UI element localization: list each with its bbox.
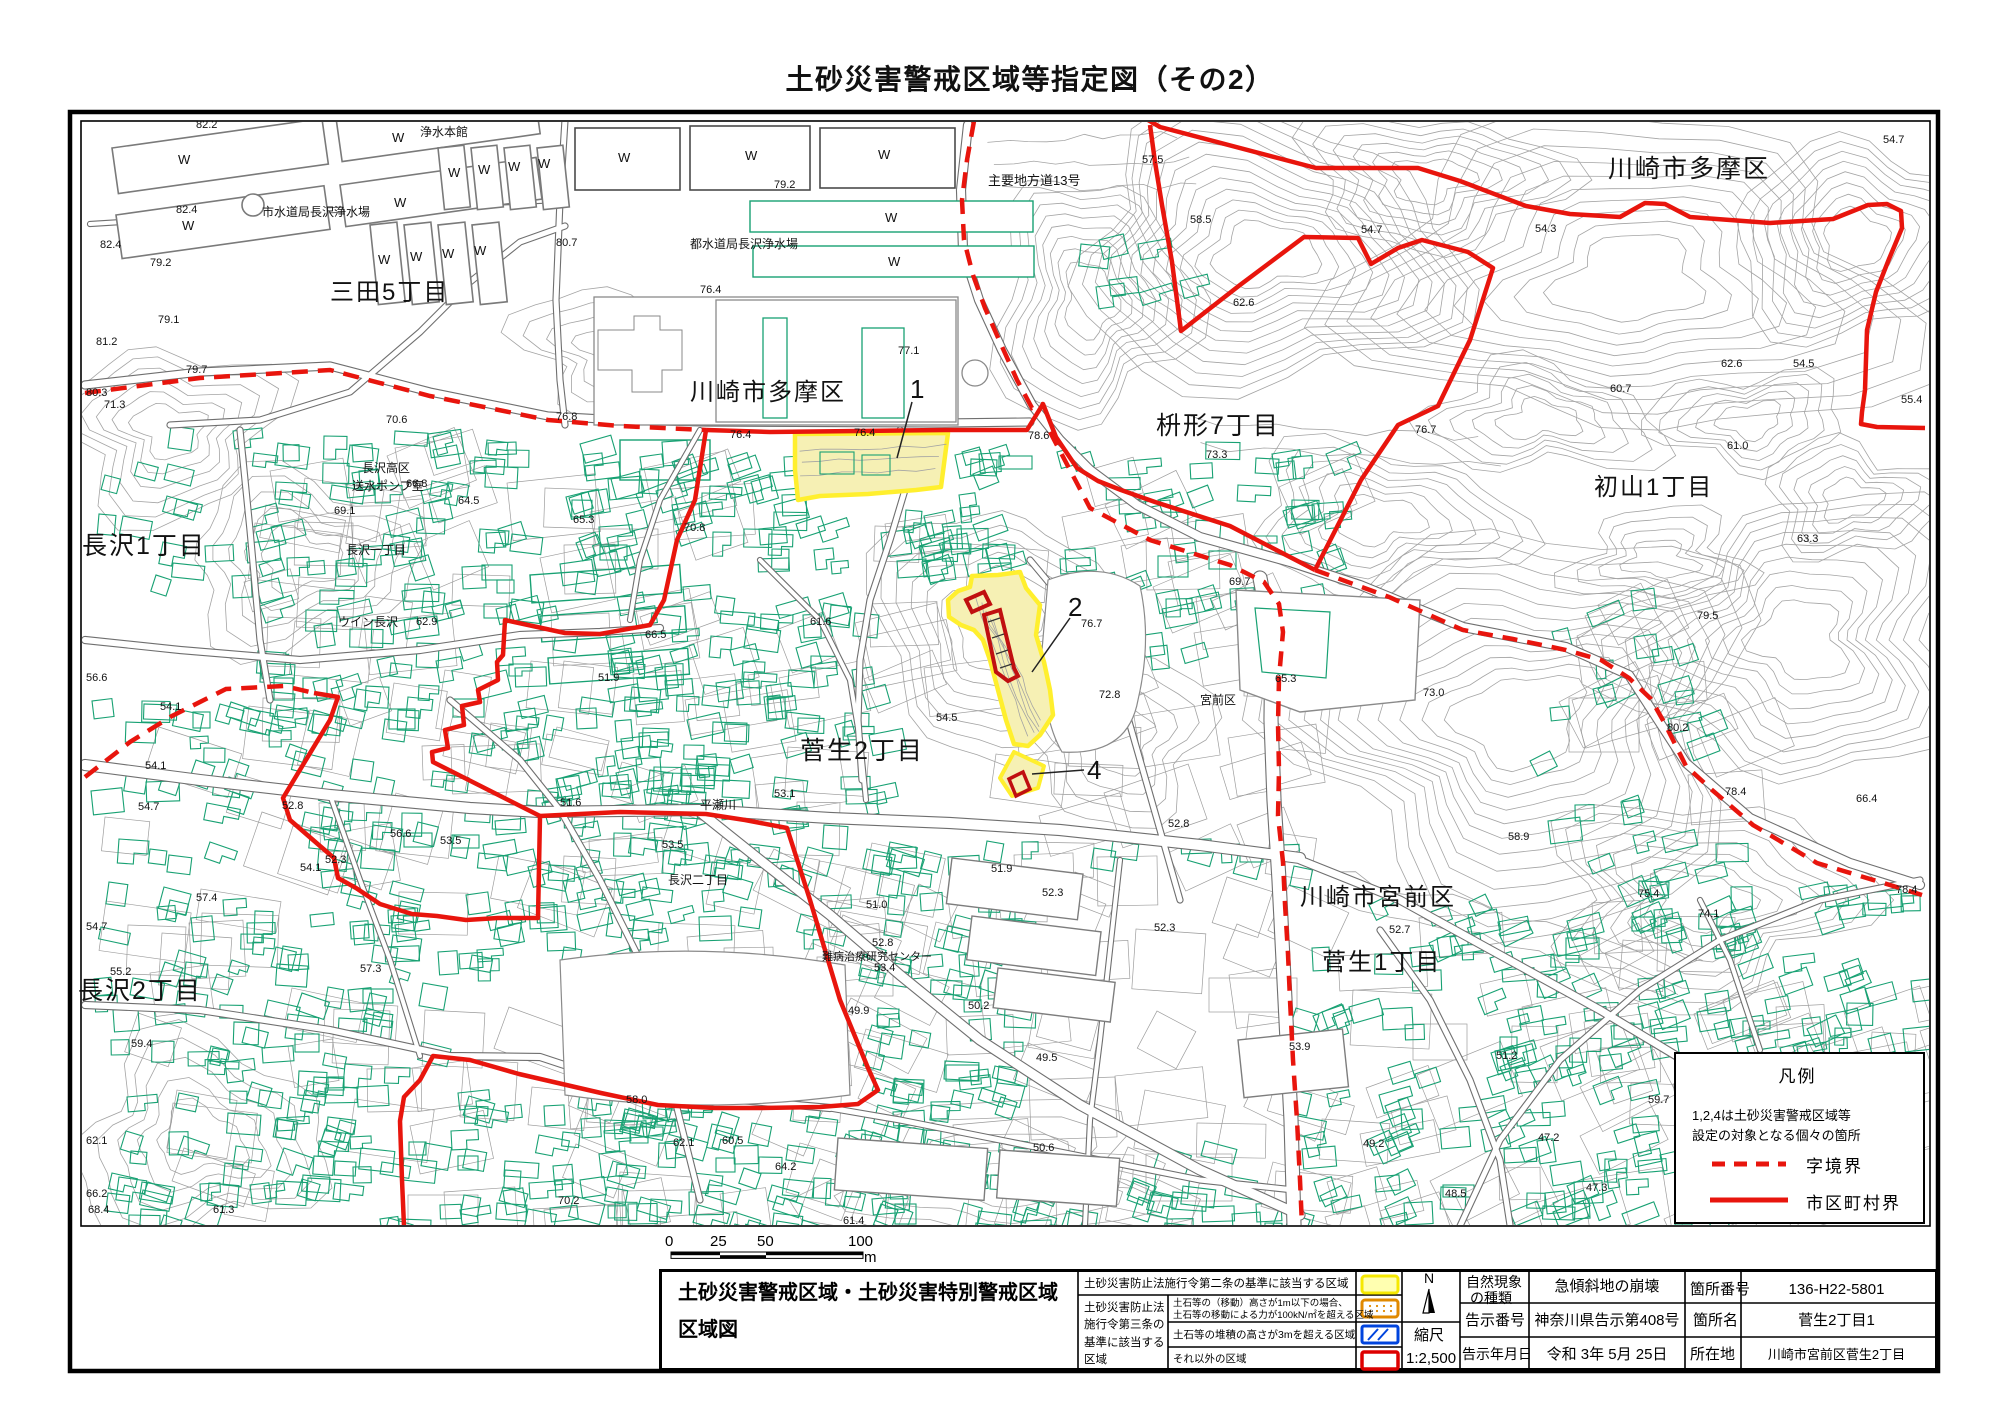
svg-text:4: 4 <box>1087 755 1101 785</box>
svg-text:N: N <box>1424 1270 1434 1286</box>
svg-text:50: 50 <box>757 1233 774 1250</box>
svg-text:25: 25 <box>710 1233 727 1250</box>
svg-text:0: 0 <box>665 1233 673 1250</box>
svg-text:100: 100 <box>848 1233 873 1250</box>
svg-text:1: 1 <box>910 374 924 404</box>
svg-text:m: m <box>864 1249 877 1266</box>
